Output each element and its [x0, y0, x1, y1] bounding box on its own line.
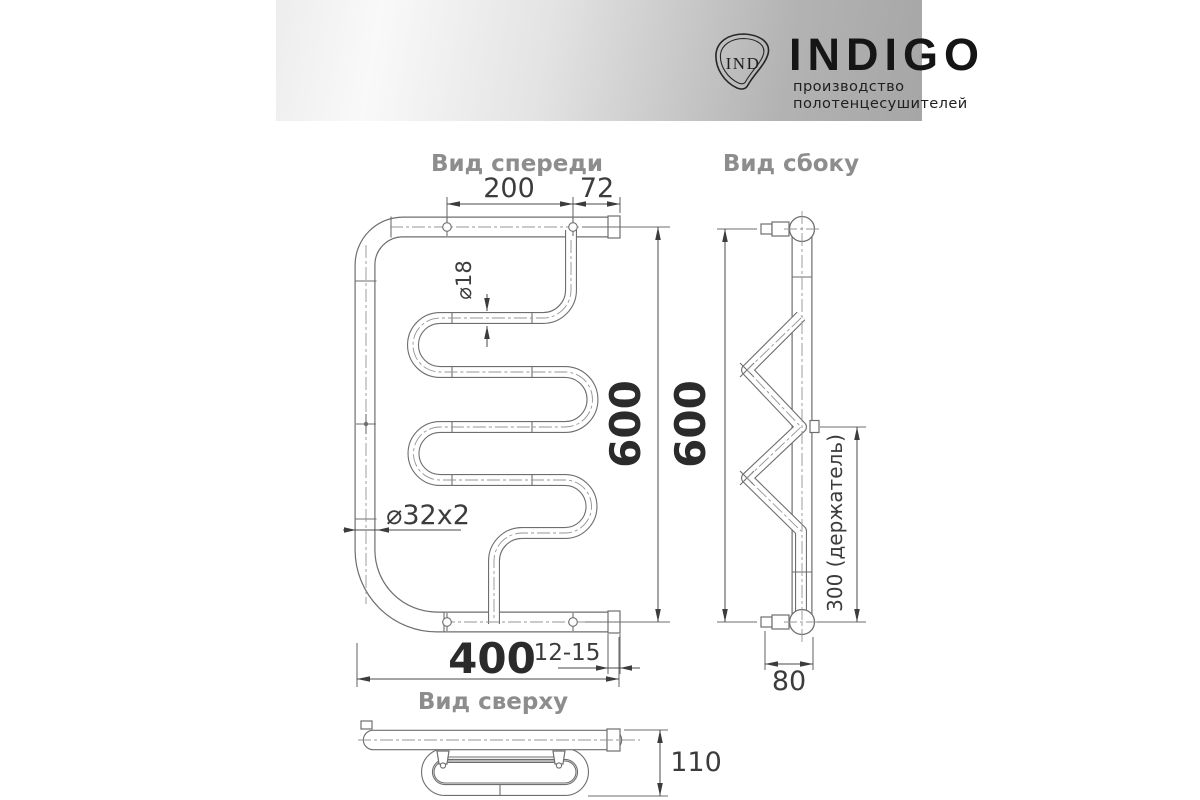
dim-side-holder: 300 (держатель) — [823, 434, 847, 612]
dim-front-frame-tube: ⌀32x2 — [386, 500, 470, 531]
technical-drawing: Вид спереди Вид сбоку Вид сверху — [0, 0, 1200, 800]
front-view-drawing — [356, 216, 621, 633]
dim-top-depth: 110 — [670, 747, 722, 778]
side-view-title: Вид сбоку — [723, 151, 859, 177]
top-view-title: Вид сверху — [418, 689, 568, 715]
dim-side-bottom-depth: 80 — [772, 666, 806, 697]
dim-front-width: 400 — [448, 634, 536, 683]
dim-front-height: 600 — [601, 380, 650, 468]
dim-front-coil-tube: ⌀18 — [452, 260, 476, 299]
dim-side-height: 600 — [666, 380, 715, 468]
top-left-tab — [361, 721, 372, 729]
side-holder-bracket — [810, 421, 819, 433]
page: IND INDIGO производство полотенцесушител… — [0, 0, 1200, 800]
dim-front-end-offset: 72 — [580, 173, 614, 204]
top-view-drawing — [358, 721, 640, 796]
dim-front-bracket-span: 200 — [483, 173, 535, 204]
side-view-drawing — [740, 211, 820, 645]
dim-front-wall-gap: 12-15 — [534, 640, 601, 666]
